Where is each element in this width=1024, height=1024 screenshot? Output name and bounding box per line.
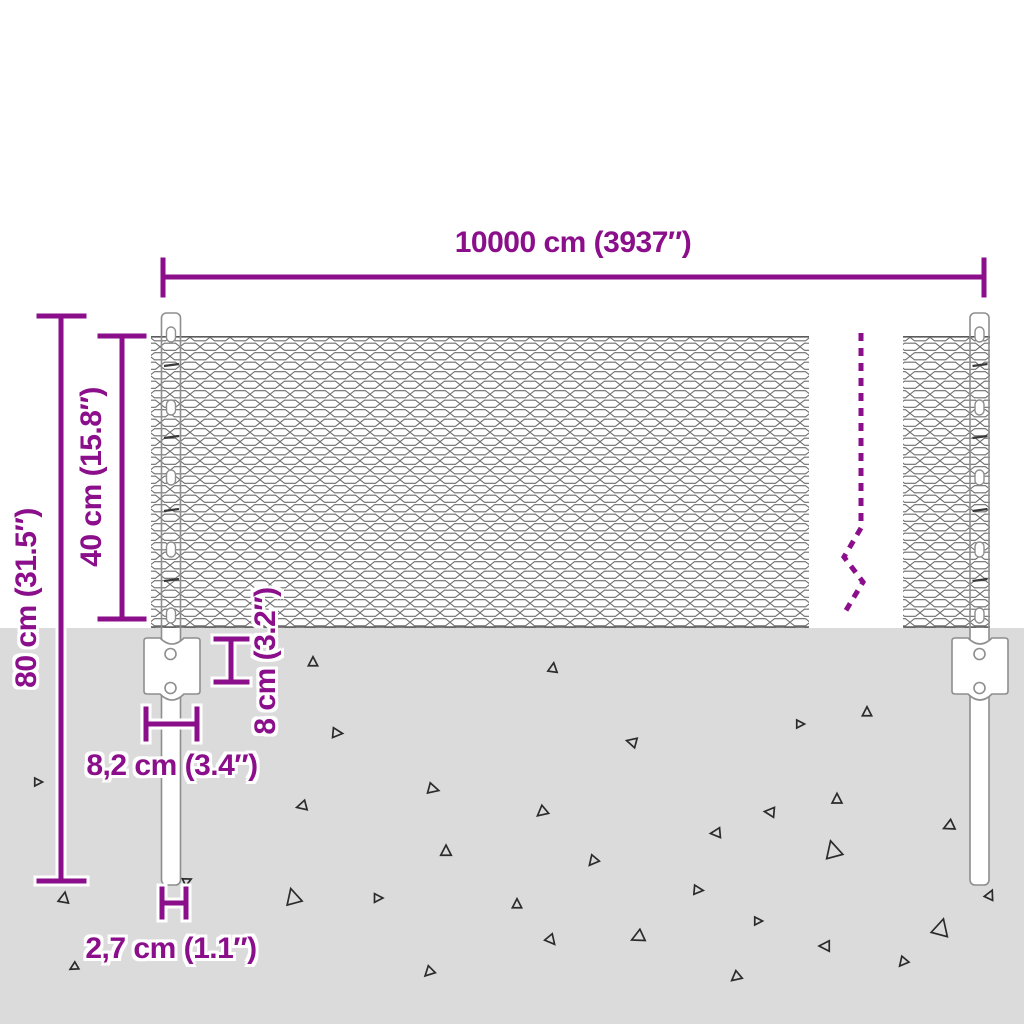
bracket-hole (165, 683, 176, 694)
left-anchor-bracket (144, 638, 200, 700)
label-anchor-height: 8 cm (3.2″) (249, 587, 283, 734)
right-anchor-bracket (952, 638, 1008, 700)
diagram-canvas: 10000 cm (3937″) 80 cm (31.5″) 40 cm (15… (0, 0, 1024, 1024)
label-anchor-width: 8,2 cm (3.4″) (86, 749, 257, 783)
label-total-height: 80 cm (31.5″) (10, 508, 44, 688)
label-post-width: 2,7 cm (1.1″) (85, 932, 256, 966)
bracket-hole (165, 649, 176, 660)
mesh-panel-main (151, 336, 809, 628)
bracket-hole (974, 683, 985, 694)
break-dashed-line (844, 333, 863, 612)
label-mesh-height: 40 cm (15.8″) (75, 387, 109, 567)
fence-diagram-graphic (0, 0, 1024, 1024)
label-total-width: 10000 cm (3937″) (455, 226, 692, 260)
bracket-hole (974, 649, 985, 660)
dim-line-total-width (163, 260, 984, 295)
